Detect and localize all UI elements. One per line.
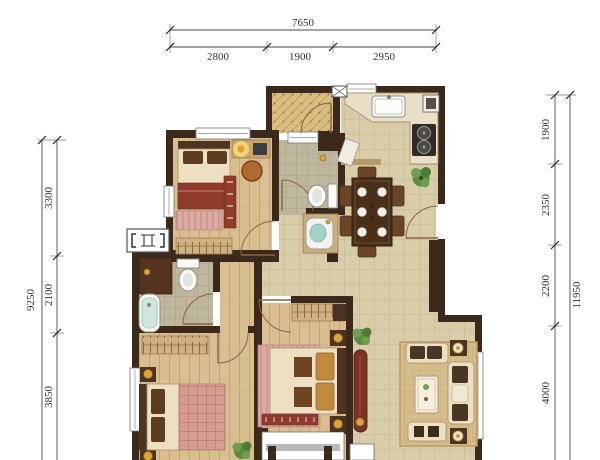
dining-chair (340, 186, 352, 206)
dim-right-total: 11950 (571, 281, 583, 309)
dim-left-seg-3: 3850 (43, 386, 55, 409)
dining-chair (392, 216, 404, 236)
ac-unit-icon (127, 229, 169, 252)
window-bathroom-balcony (288, 132, 318, 143)
dim-right-seg-2: 2350 (540, 194, 552, 217)
dim-left-seg-1: 3300 (43, 187, 55, 210)
dimension-right: 11950 1900 2350 2200 4000 (540, 91, 583, 460)
dining-chair (358, 167, 376, 178)
dim-top-total: 7650 (292, 17, 315, 29)
dimension-top: 7650 2800 1900 2950 (166, 17, 440, 63)
pillow (316, 383, 334, 410)
window-bedroom-top (196, 128, 250, 139)
bed-blanket (179, 384, 225, 450)
bed-headboard (139, 384, 147, 450)
dim-right-seg-4: 4000 (540, 382, 552, 405)
toilet-tank (328, 184, 337, 208)
dresser (224, 176, 236, 228)
living-room (400, 340, 477, 446)
dim-right-seg-3: 2200 (540, 275, 552, 298)
pillow (151, 389, 165, 414)
floor-plan-canvas: 7650 2800 1900 2950 9250 3300 2100 3850 … (0, 0, 600, 460)
window-kitchen (347, 84, 376, 94)
balcony-floor (272, 93, 333, 133)
pillow (207, 151, 227, 164)
bed-lamp-icon (144, 370, 153, 379)
window-bedroom-left (164, 186, 174, 217)
bed-headboard (337, 348, 346, 414)
dim-left-total: 9250 (25, 289, 37, 312)
coffee-table (415, 376, 438, 413)
floor-plan-page: 7650 2800 1900 2950 9250 3300 2100 3850 … (0, 0, 600, 460)
opening-bottom-hall (350, 444, 374, 460)
window-bedroom-bottom-left (130, 368, 140, 431)
dining-chair (340, 216, 352, 236)
wall-lamp-icon (320, 155, 326, 161)
lamp-icon (356, 418, 364, 426)
dim-top-seg-3: 2950 (373, 51, 396, 63)
bedside-rug (176, 211, 222, 230)
bed-lamp-icon (334, 420, 343, 429)
desk-chair (242, 161, 262, 181)
sink-icon (310, 224, 326, 242)
bath-cabinet (139, 258, 172, 294)
pillow (151, 417, 165, 442)
side-table (450, 340, 467, 356)
side-table (450, 428, 467, 444)
dim-top-seg-2: 1900 (289, 51, 312, 63)
bed-lamp-icon (144, 452, 153, 460)
bench (408, 422, 446, 441)
bed-blanket (178, 183, 230, 209)
dining-chair (392, 186, 404, 206)
dim-top-seg-1: 2800 (207, 51, 230, 63)
toilet-tank (177, 259, 199, 268)
pillow (183, 151, 203, 164)
flue-icon (332, 86, 347, 97)
laptop-icon (253, 143, 267, 155)
bed-lamp-icon (334, 334, 343, 343)
bed-headboard (178, 141, 230, 149)
cabinet (333, 304, 346, 321)
vanity (303, 214, 338, 253)
pillow (316, 353, 334, 380)
dining-chair (358, 246, 376, 257)
dim-left-seg-2: 2100 (43, 284, 55, 307)
bay-window-master (262, 432, 344, 460)
dim-right-seg-1: 1900 (540, 119, 552, 142)
dimension-left: 9250 3300 2100 3850 (25, 136, 66, 460)
entry-door-opening (436, 204, 446, 239)
